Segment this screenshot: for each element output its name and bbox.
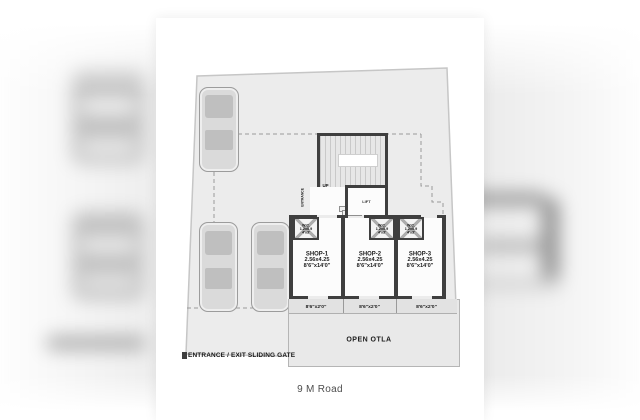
- wall: [385, 133, 388, 218]
- otla-strip-divider: [396, 299, 397, 313]
- up-label: UP: [323, 183, 329, 188]
- otla-strip-divider: [343, 299, 344, 313]
- car-rear-window: [205, 268, 232, 289]
- car-windshield: [205, 231, 232, 255]
- car-windshield: [205, 95, 233, 117]
- wc-shop-2: W.C.1.2x0.94'x3': [369, 217, 395, 240]
- car-windshield: [257, 231, 284, 255]
- wc-label: W.C.1.2x0.94'x3': [301, 224, 312, 234]
- wall: [317, 133, 320, 187]
- wc-label: W.C.1.2x0.94'x3': [406, 224, 417, 234]
- stair-landing: [338, 154, 378, 167]
- parked-car-right: [251, 222, 290, 312]
- entrance-vertical-label: ENTRANCE: [301, 193, 305, 206]
- otla-size-shop-3: 8'6"x2'0": [409, 304, 444, 310]
- wall: [442, 215, 446, 300]
- lift-label: LIFT: [362, 199, 370, 204]
- sliding-gate-marker: [182, 352, 187, 359]
- shop-1-label: SHOP-1 2.56x4.25 8'6"x14'0": [301, 250, 334, 268]
- wall: [341, 215, 345, 300]
- otla-size-shop-2: 8'6"x2'0": [353, 304, 386, 310]
- floor-plan-screenshot: UP LIFT ENTRANCE W.C.1.2x0.94'x3' W.C.1.…: [0, 0, 640, 420]
- car-rear-window: [257, 268, 284, 289]
- car-rear-window: [205, 130, 233, 150]
- shop-3-label: SHOP-3 2.56x4.25 8'6"x14'0": [404, 250, 437, 268]
- wall: [317, 133, 388, 136]
- road-label: 9 M Road: [0, 384, 640, 395]
- wc-label: W.C.1.2x0.94'x3': [377, 224, 388, 234]
- open-otla-label: OPEN OTLA: [346, 335, 391, 343]
- parked-car-left: [199, 222, 238, 312]
- parked-car-top: [199, 87, 239, 172]
- wc-shop-3: W.C.1.2x0.94'x3': [398, 217, 424, 240]
- shop-2-label: SHOP-2 2.56x4.25 8'6"x14'0": [354, 250, 387, 268]
- otla-size-shop-1: 8'6"x2'0": [299, 304, 332, 310]
- wc-shop-1: W.C.1.2x0.94'x3': [293, 217, 319, 240]
- gate-label: ENTRANCE / EXIT SLIDING GATE: [188, 351, 295, 358]
